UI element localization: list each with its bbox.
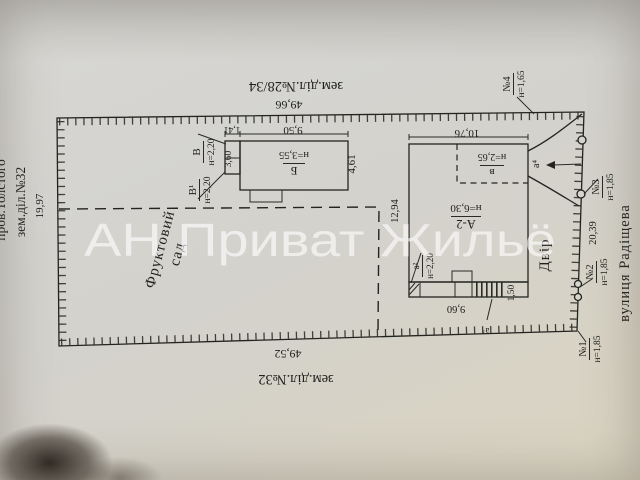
left-plot-label: зем.діл.№32 [13,167,28,237]
svg-text:н=2,20: н=2,20 [207,138,217,165]
point-label-1: №1 н=1,85 [578,335,603,362]
svg-text:№4: №4 [502,76,513,92]
svg-text:н=2,65: н=2,65 [478,151,507,162]
steps-leader [487,299,492,320]
gate-arrow-icon [546,161,555,169]
agency-watermark: АН Приват Жильё [84,214,556,266]
bottom-plot-label: зем.діл.№32 [258,371,334,387]
street-name-right: вулиця Радіщева [617,204,633,322]
annex-v-label: В н=2,20 [191,138,217,165]
survey-point [575,294,582,301]
svg-text:н=2,20: н=2,20 [203,176,213,203]
dim-b-annex-height: 3,60 [224,150,234,167]
inner-room-label: в н=2,65 [478,151,507,178]
annex-v1-label: В¹ н=2,20 [187,176,213,203]
left-length-label: 19,97 [34,193,46,218]
svg-text:в: в [489,166,494,178]
gate-label: а⁴ [531,160,542,168]
right-length-label: 20,39 [588,221,599,245]
photo-corner-shadow [0,408,137,480]
svg-text:н=6,30: н=6,30 [450,202,482,214]
dim-b-side: 4,61 [346,154,358,173]
porch-cell-hatch [409,284,419,295]
dim-b-width: 9,50 [283,124,303,136]
dim-a2-bottom: 9,60 [447,303,465,314]
top-length-label: 49,66 [276,98,303,112]
svg-text:Б: Б [290,164,297,178]
point-label-3: №3 н=1,85 [591,173,616,200]
lane-name-left: пров.Толстого [0,159,8,241]
top-plot-label: зем.діл.№28/34 [248,78,343,94]
svg-text:н=1,65: н=1,65 [517,70,527,97]
boundary-hatch-bottom [61,327,575,342]
point4-leader [517,97,534,114]
svg-text:н=1,85: н=1,85 [606,173,616,200]
survey-point [577,190,585,198]
steps-label: а³ [482,326,489,336]
survey-point [578,136,586,144]
svg-text:н=1,85: н=1,85 [593,335,603,362]
gate-flare-bottom-curve [528,176,579,206]
svg-text:В: В [191,148,203,155]
building-b-porch [250,190,282,202]
gate-flare-top-curve [528,114,582,151]
point-label-4: №4 н=1,65 [502,70,527,97]
porch-notch [452,271,472,282]
bottom-length-label: 49,52 [275,347,302,361]
svg-text:№2: №2 [585,264,596,279]
scanned-cadastral-plan-photo: 1,41 9,50 3,60 4,61 Б н=3,55 В н=2,20 В¹… [0,0,640,480]
dim-steps: 1,50 [507,284,517,301]
svg-text:№1: №1 [578,341,589,356]
point1-leader [578,331,586,342]
svg-text:В¹: В¹ [187,185,199,196]
dim-a2-width: 10,76 [454,127,479,139]
building-b-label: Б н=3,55 [279,149,309,178]
svg-text:№3: №3 [591,179,602,194]
dim-b-annex-width: 1,41 [223,124,240,134]
svg-text:н=3,55: н=3,55 [279,149,309,160]
svg-text:н=1,85: н=1,85 [600,258,610,285]
boundary-hatch-left [61,121,63,343]
